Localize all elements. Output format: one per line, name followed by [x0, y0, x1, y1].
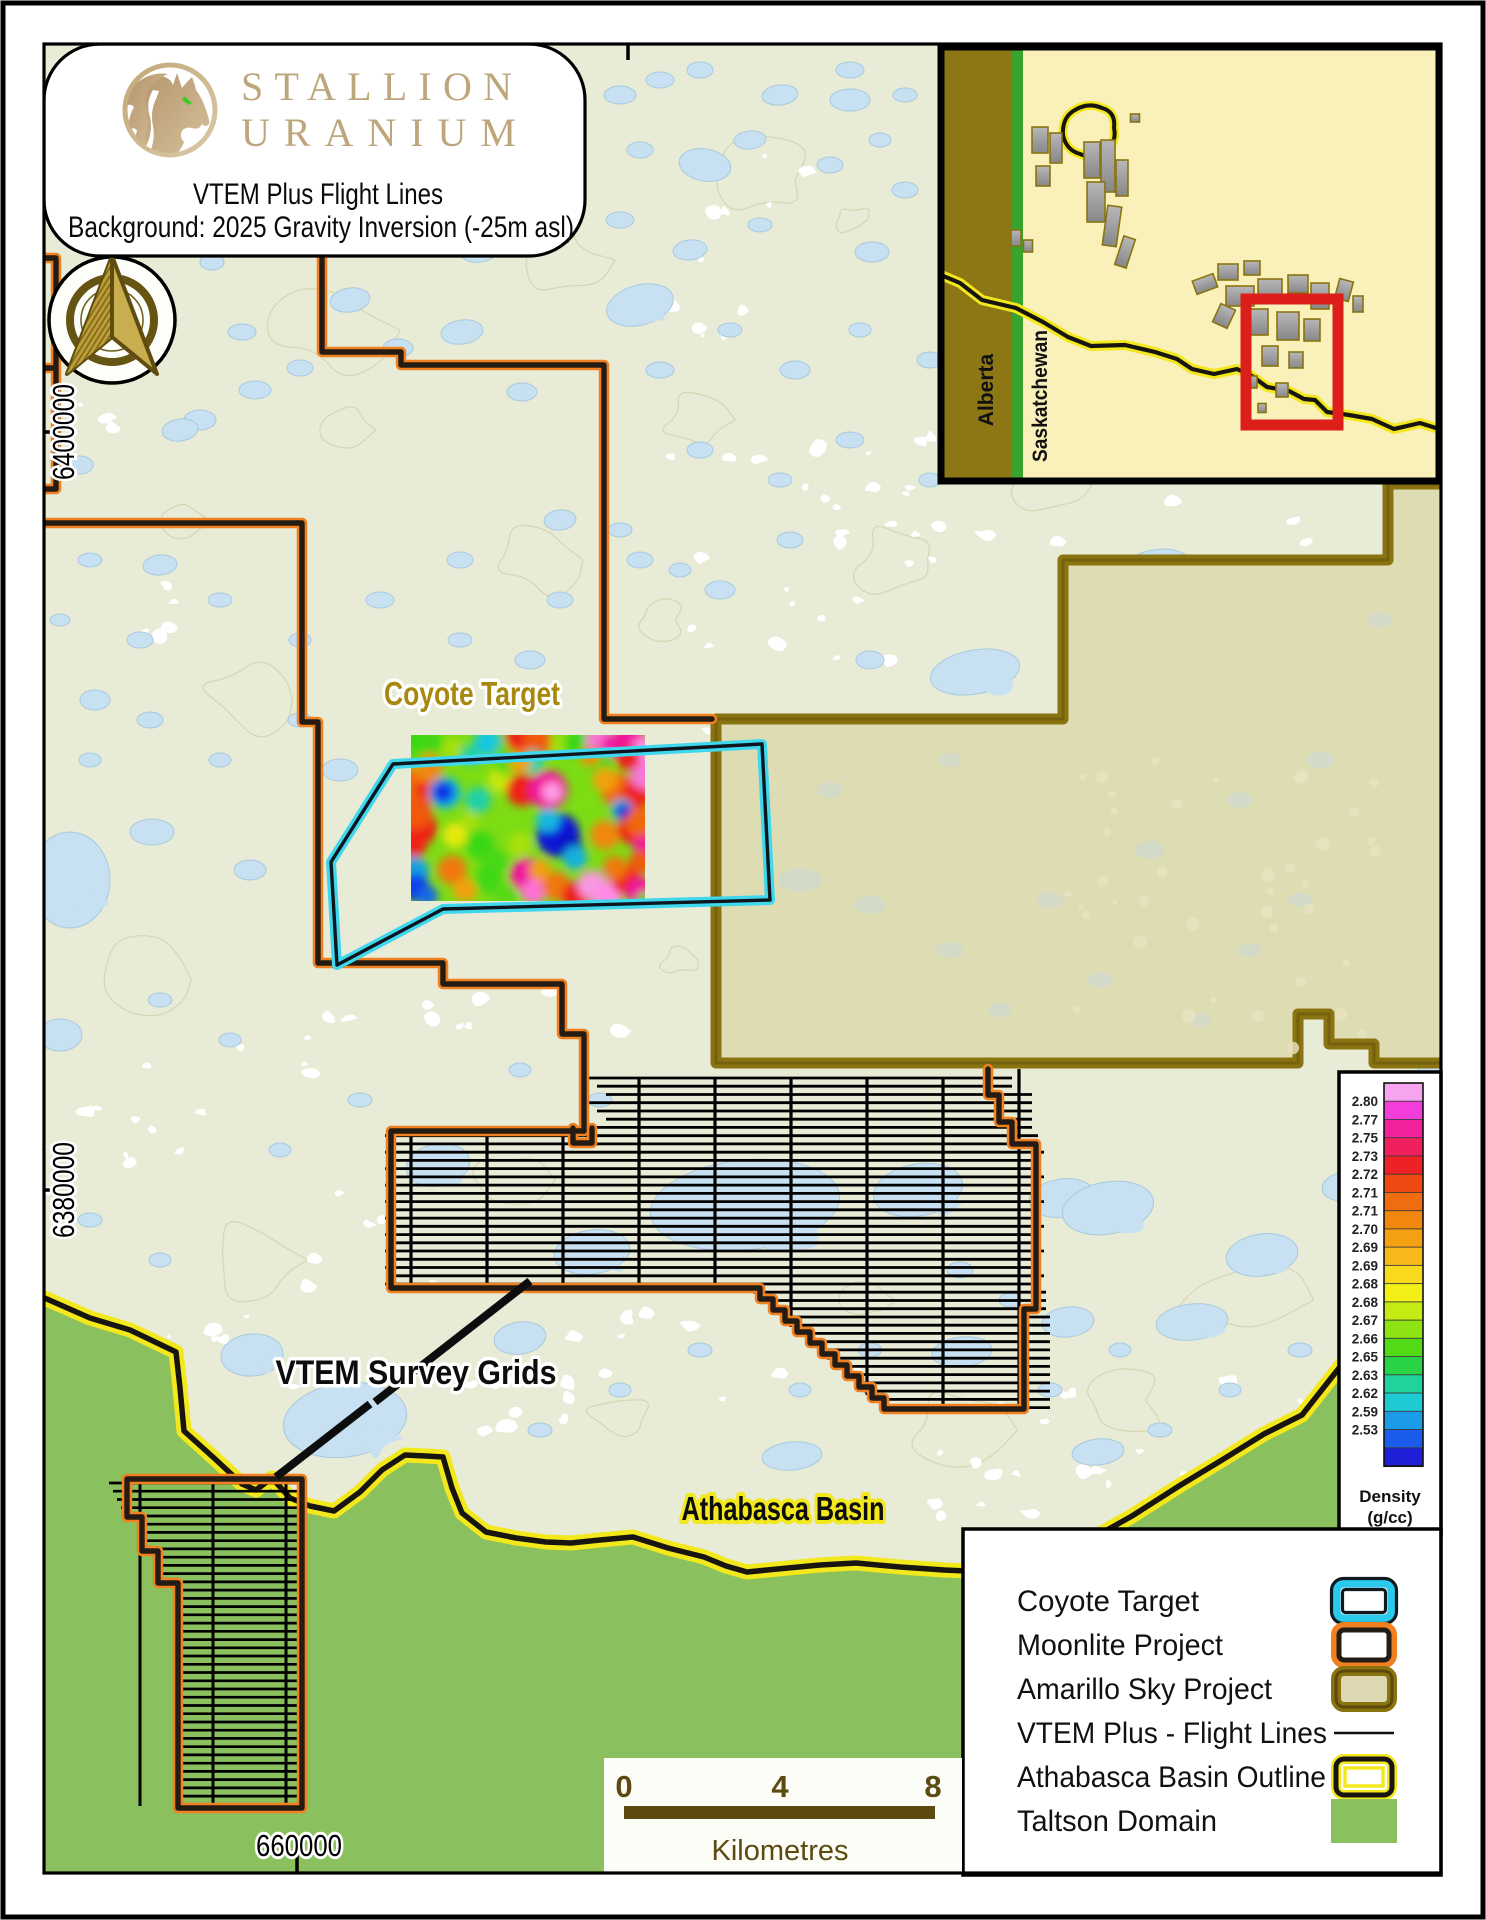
svg-text:2.69: 2.69: [1352, 1258, 1378, 1273]
svg-text:6380000: 6380000: [46, 1142, 81, 1238]
svg-text:Athabasca Basin: Athabasca Basin: [682, 1490, 885, 1527]
svg-text:2.77: 2.77: [1352, 1113, 1378, 1128]
svg-text:2.68: 2.68: [1352, 1277, 1379, 1292]
svg-text:4: 4: [771, 1769, 789, 1804]
svg-text:2.71: 2.71: [1352, 1204, 1379, 1219]
svg-text:2.66: 2.66: [1352, 1331, 1379, 1346]
svg-text:2.65: 2.65: [1352, 1350, 1379, 1365]
svg-text:Moonlite Project: Moonlite Project: [1017, 1629, 1224, 1662]
svg-text:Amarillo Sky Project: Amarillo Sky Project: [1017, 1673, 1273, 1706]
svg-text:Coyote Target: Coyote Target: [384, 675, 560, 712]
svg-text:Taltson Domain: Taltson Domain: [1017, 1805, 1217, 1838]
svg-text:2.75: 2.75: [1352, 1131, 1379, 1146]
svg-text:2.59: 2.59: [1352, 1404, 1378, 1419]
svg-text:VTEM Plus - Flight Lines: VTEM Plus - Flight Lines: [1017, 1717, 1327, 1750]
svg-text:(g/cc): (g/cc): [1367, 1508, 1412, 1527]
svg-text:Coyote Target: Coyote Target: [1017, 1585, 1200, 1618]
svg-text:2.73: 2.73: [1352, 1149, 1379, 1164]
svg-text:2.62: 2.62: [1352, 1386, 1378, 1401]
svg-text:2.68: 2.68: [1352, 1295, 1379, 1310]
svg-text:0: 0: [615, 1769, 632, 1804]
svg-text:2.67: 2.67: [1352, 1313, 1378, 1328]
svg-text:Background: 2025 Gravity Inver: Background: 2025 Gravity Inversion (-25m…: [68, 211, 574, 244]
svg-text:VTEM Plus Flight Lines: VTEM Plus Flight Lines: [193, 178, 443, 211]
svg-text:Kilometres: Kilometres: [712, 1835, 849, 1867]
svg-text:2.63: 2.63: [1352, 1368, 1379, 1383]
svg-text:2.80: 2.80: [1352, 1094, 1378, 1109]
svg-text:Athabasca Basin Outline: Athabasca Basin Outline: [1017, 1761, 1326, 1794]
svg-text:Alberta: Alberta: [975, 354, 998, 427]
svg-text:2.70: 2.70: [1352, 1222, 1378, 1237]
svg-text:2.53: 2.53: [1352, 1423, 1379, 1438]
svg-text:2.72: 2.72: [1352, 1167, 1378, 1182]
svg-text:2.69: 2.69: [1352, 1240, 1378, 1255]
svg-text:6400000: 6400000: [46, 384, 81, 480]
svg-text:Density: Density: [1359, 1487, 1421, 1506]
svg-text:VTEM Survey Grids: VTEM Survey Grids: [276, 1354, 557, 1392]
svg-text:Saskatchewan: Saskatchewan: [1029, 330, 1052, 462]
svg-text:660000: 660000: [256, 1828, 342, 1863]
svg-text:8: 8: [924, 1769, 941, 1804]
svg-text:2.71: 2.71: [1352, 1185, 1379, 1200]
